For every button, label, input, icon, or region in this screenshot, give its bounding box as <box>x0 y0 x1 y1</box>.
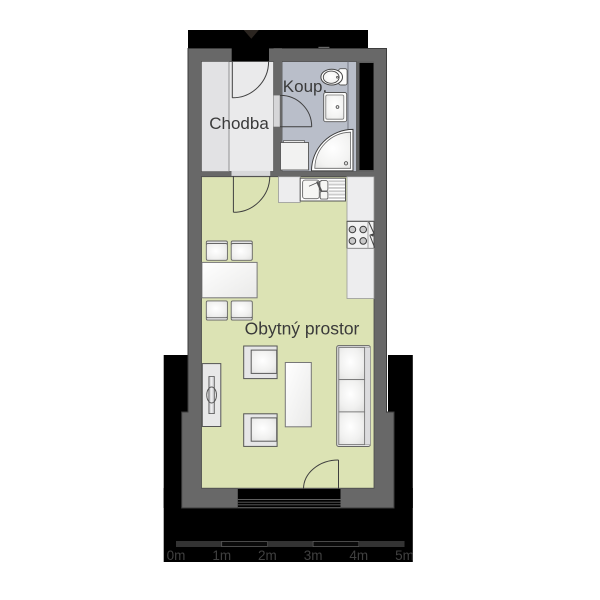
svg-text:Koup.: Koup. <box>283 77 327 96</box>
svg-text:3m: 3m <box>304 548 323 563</box>
svg-text:0m: 0m <box>167 548 186 563</box>
svg-text:4m: 4m <box>349 548 368 563</box>
svg-text:Obytný prostor: Obytný prostor <box>245 319 360 339</box>
svg-text:Chodba: Chodba <box>209 114 269 133</box>
svg-text:5m: 5m <box>395 548 414 563</box>
svg-text:2m: 2m <box>258 548 277 563</box>
svg-text:1m: 1m <box>212 548 231 563</box>
